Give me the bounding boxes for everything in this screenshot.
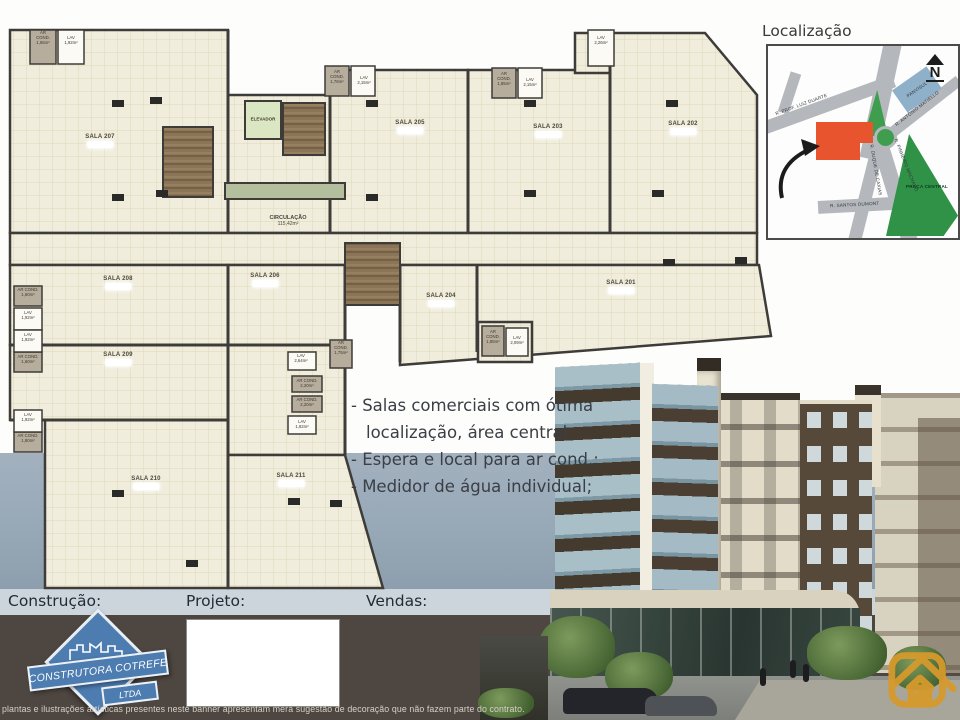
fixture-label: LAV 2,64m² bbox=[294, 354, 307, 364]
fixture-label: AR COND. 2,20m² bbox=[296, 379, 317, 389]
fixture-label: LAV 1,92m² bbox=[21, 413, 34, 423]
north-compass: N bbox=[926, 54, 944, 82]
fixture-label: AR COND. 1,76m² bbox=[330, 70, 344, 85]
fixture-label: AR COND. 1,60m² bbox=[17, 288, 38, 298]
roundabout bbox=[874, 126, 897, 149]
room-label-sala-201: SALA 201 bbox=[606, 280, 635, 294]
disclaimer-text: plantas e ilustrações artísticas present… bbox=[2, 704, 702, 714]
feature-line: - Espera e local para ar cond.; bbox=[351, 446, 599, 473]
room-label-sala-205: SALA 205 bbox=[395, 120, 424, 134]
shrub bbox=[807, 626, 887, 680]
features-list: - Salas comerciais com ótima localização… bbox=[351, 392, 599, 500]
fixture-label: LAV 1,92m² bbox=[21, 333, 34, 343]
fixture-label: LAV 2,15m² bbox=[357, 76, 370, 86]
elevator-label: ELEVADOR bbox=[251, 117, 276, 122]
room-label-sala-210: SALA 210 bbox=[131, 476, 160, 490]
room-label-sala-211: SALA 211 bbox=[276, 473, 305, 487]
location-map: PANVISUL R. PROF. LUIZ DUARTE R. ANTÔNIO… bbox=[766, 44, 960, 240]
building-balcony-tower-center bbox=[652, 384, 718, 616]
shrub bbox=[539, 616, 615, 678]
construction-label: Construção: bbox=[8, 592, 101, 610]
sales-label: Vendas: bbox=[366, 592, 427, 610]
fixture-label: LAV 1,92m² bbox=[295, 420, 308, 430]
room-label-sala-202: SALA 202 bbox=[668, 121, 697, 135]
pedestrian bbox=[760, 668, 766, 686]
fixture-label: LAV 2,26m² bbox=[594, 36, 607, 46]
circulation-label: CIRCULAÇÃO 115,42m² bbox=[270, 215, 307, 227]
room-label-sala-208: SALA 208 bbox=[103, 276, 132, 290]
north-letter: N bbox=[926, 65, 944, 82]
fixture-label: AR COND. 1,85m² bbox=[486, 330, 500, 345]
room-label-sala-206: SALA 206 bbox=[250, 273, 279, 287]
feature-line: - Salas comerciais com ótima bbox=[351, 392, 599, 419]
construtora-cotrefe-logo: CONSTRUTORA COTREFE LTDA bbox=[22, 616, 172, 718]
circulation-area: 115,42m² bbox=[270, 221, 307, 227]
project-blank-box bbox=[186, 619, 340, 707]
landmark-label: PRAÇA CENTRAL bbox=[906, 184, 948, 189]
fixture-label: AR COND. 1,75m² bbox=[334, 341, 348, 356]
fixture-label: LAV 1,92m² bbox=[64, 36, 77, 46]
fixture-label: LAV 2,15m² bbox=[523, 78, 536, 88]
location-map-title: Localização bbox=[762, 22, 852, 40]
pointer-arrow bbox=[774, 132, 834, 204]
building-side-shade bbox=[918, 418, 960, 676]
feature-line: - Medidor de água individual; bbox=[351, 473, 599, 500]
room-label-sala-209: SALA 209 bbox=[103, 352, 132, 366]
pedestrian bbox=[790, 660, 796, 678]
pedestrian bbox=[803, 664, 809, 682]
fixture-label: AR COND. 1,60m² bbox=[17, 355, 38, 365]
fixture-label: AR COND. 1,65m² bbox=[36, 31, 50, 46]
project-label: Projeto: bbox=[186, 592, 245, 610]
room-label-sala-207: SALA 207 bbox=[85, 134, 114, 148]
fixture-label: AR COND. 2,20m² bbox=[296, 398, 317, 408]
agency-house-watermark-icon bbox=[882, 642, 960, 714]
landmark-label: PANVISUL bbox=[906, 81, 929, 99]
fixture-label: AR COND. 1,85m² bbox=[497, 72, 511, 87]
room-label-sala-203: SALA 203 bbox=[533, 124, 562, 138]
fixture-label: LAV 2,09m² bbox=[510, 336, 523, 346]
feature-line: localização, área central; bbox=[351, 419, 599, 446]
fixture-label: AR COND. 1,80m² bbox=[17, 434, 38, 444]
subject-property-marker bbox=[858, 122, 873, 143]
fixture-label: LAV 1,92m² bbox=[21, 311, 34, 321]
real-estate-banner: SALA 207 SALA 205 SALA 203 SALA 202 SALA… bbox=[0, 0, 960, 720]
room-label-sala-204: SALA 204 bbox=[426, 293, 455, 307]
